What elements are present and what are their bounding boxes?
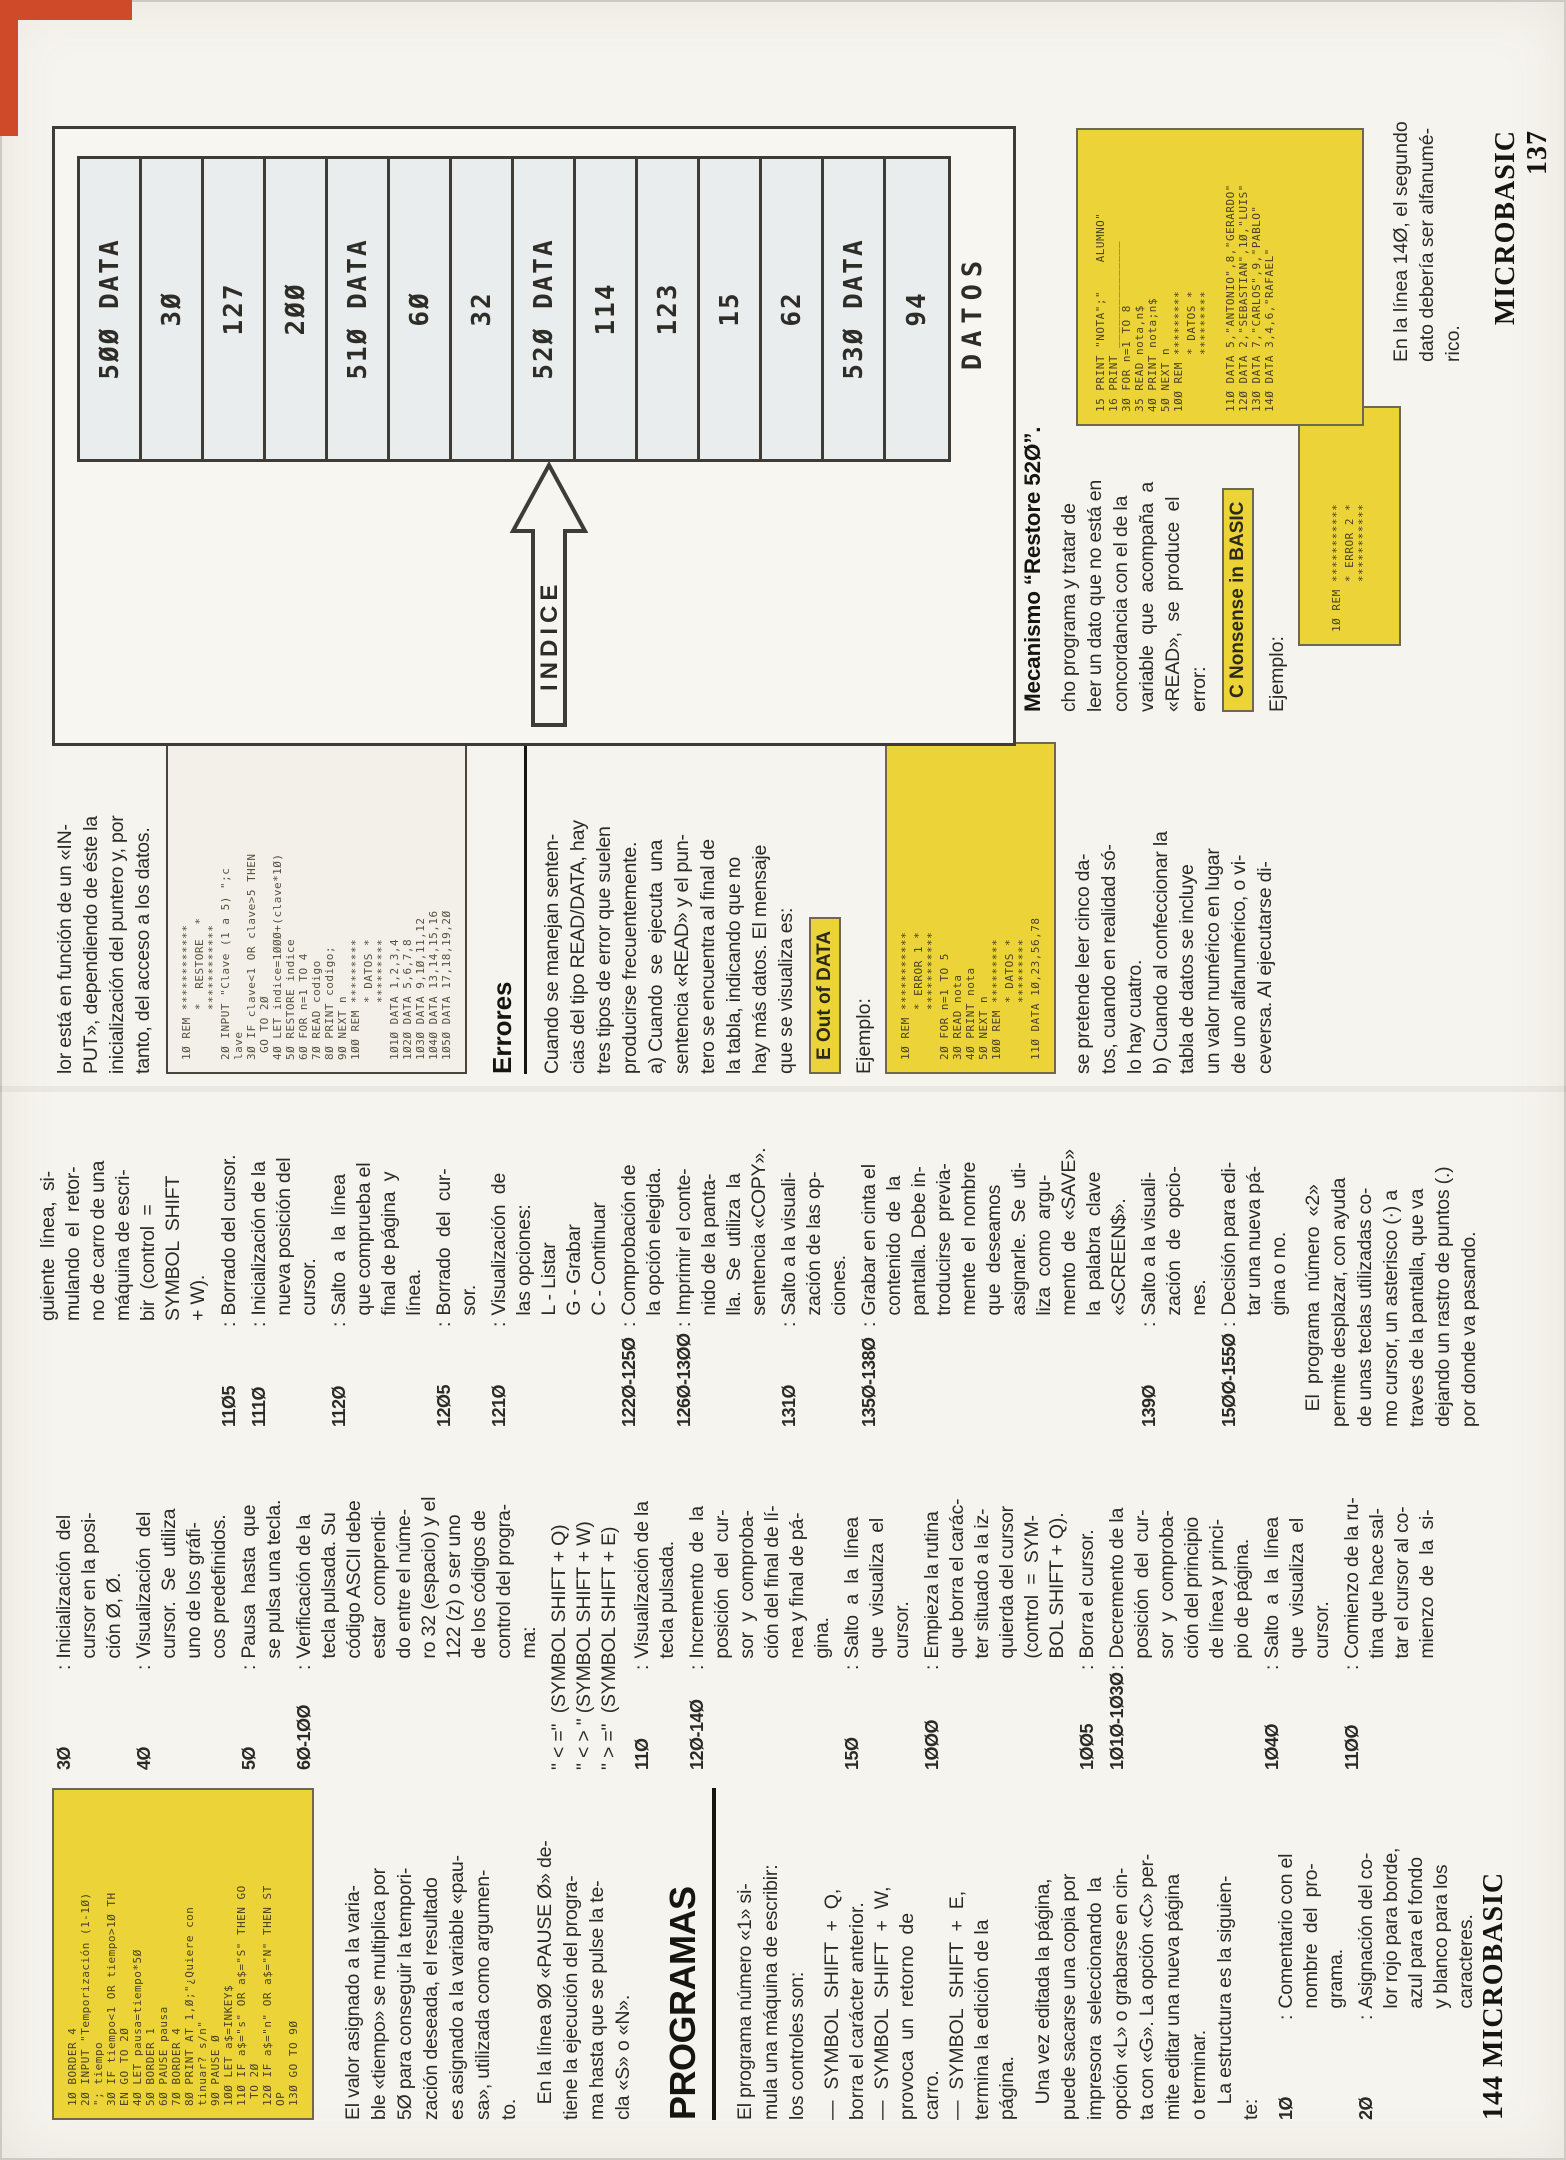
entry-text: Inicialización delcursor en la posi-ción… xyxy=(52,1444,127,1659)
line-number-entry: 111Ø:Inicialización de lanueva posición … xyxy=(247,1105,322,1427)
text-line: 1Ø REM ************ xyxy=(180,756,193,1060)
line-entries-10-20: 1Ø:Comentario con elnombre del pro-grama… xyxy=(1274,1788,1479,2120)
text-line: tina que hace sal- xyxy=(1365,1444,1390,1659)
entry-text: Borrado del cur-sor. xyxy=(432,1105,482,1316)
table-row: 15 xyxy=(700,159,762,459)
entry-number: 135Ø-138Ø xyxy=(857,1331,1132,1427)
text-line: + W). xyxy=(186,1105,211,1321)
text-line: las opciones: xyxy=(512,1105,537,1316)
entry-colon: : xyxy=(247,1316,322,1331)
entry-number: 139Ø xyxy=(1137,1331,1212,1427)
text-line: 8Ø PRINT AT 1,Ø;"¿Quiere con xyxy=(183,1802,196,2106)
text-line: cursor en la posi- xyxy=(77,1444,102,1659)
data-table: 5ØØ DATA3Ø1272ØØ51Ø DATA6Ø3252Ø DATA1141… xyxy=(77,156,951,462)
text-line: 6Ø FOR n=1 TO 4 xyxy=(297,756,310,1060)
text-line: — SYMBOL SHIFT + E, xyxy=(945,1788,970,2120)
entry-number: 112Ø xyxy=(327,1331,427,1427)
entry-text: Borra el cursor. xyxy=(1075,1444,1100,1659)
text-line: «SCREEN$». xyxy=(1107,1105,1132,1316)
section-heading-programas: PROGRAMAS xyxy=(662,1788,716,2120)
entry-number: 1Ø4Ø xyxy=(1260,1674,1335,1770)
column-b: 3Ø:Inicialización delcursor en la posi-c… xyxy=(52,1444,1445,1770)
text-line: uno de los gráfi- xyxy=(182,1444,207,1659)
entry-number: 3Ø xyxy=(52,1674,127,1770)
text-line: puede sacarse una copia por xyxy=(1056,1788,1082,2120)
paragraph-una-vez-editada: Una vez editada la página,puede sacarse … xyxy=(1030,1788,1264,2120)
text-line: contenido de la xyxy=(882,1105,907,1316)
entry-colon: : xyxy=(217,1316,242,1331)
text-line: nea y final de pá- xyxy=(785,1444,810,1659)
text-line: ********* xyxy=(1198,142,1211,412)
text-line: cursor. Se utiliza xyxy=(157,1444,182,1659)
entry-colon: : xyxy=(777,1316,852,1331)
text-line: lor rojo para borde, xyxy=(1379,1788,1404,2009)
text-line: gina o no. xyxy=(1267,1105,1292,1316)
entry-text: Comentario con elnombre del pro-grama. xyxy=(1274,1788,1349,2009)
entry-number: 126Ø-13ØØ xyxy=(672,1331,772,1427)
text-line: 4Ø LET indice=1ØØØ+(clave*1Ø) xyxy=(271,756,284,1060)
text-line: mula una máquina de escribir: xyxy=(758,1788,784,2120)
text-line: troducirse previa- xyxy=(932,1105,957,1316)
text-line: pio de página. xyxy=(1230,1444,1255,1659)
text-line: posición del cur- xyxy=(1130,1444,1155,1659)
text-line: cla «S» o «N». xyxy=(610,1788,636,2120)
text-line: Cuando se manejan senten- xyxy=(539,742,565,1074)
line-number-entry: 4Ø:Visualización delcursor. Se utilizaun… xyxy=(132,1444,232,1770)
line-number-entry: 12Ø-14Ø:Incremento de laposición del cur… xyxy=(685,1444,835,1770)
text-line: 1ØØ REM ********* xyxy=(349,756,362,1060)
entry-number: 5Ø xyxy=(237,1674,287,1770)
text-line: ción del final de lí- xyxy=(760,1444,785,1659)
text-line: El programa número «1» si- xyxy=(732,1788,758,2120)
text-line: 3Ø IF tiempo<1 OR tiempo>1Ø TH xyxy=(105,1802,118,2106)
text-line: sa», utilizada como argumen- xyxy=(470,1788,496,2120)
entry-colon: : xyxy=(1354,2009,1479,2024)
entry-colon: : xyxy=(1137,1316,1212,1331)
text-line: tecla pulsada. xyxy=(655,1444,680,1659)
text-line: GO TO 2Ø xyxy=(258,756,271,1060)
text-line: Salto a la visuali- xyxy=(1137,1105,1162,1316)
text-line: Pausa hasta que xyxy=(237,1444,262,1659)
entry-number: 4Ø xyxy=(132,1674,232,1770)
text-line: producirse frecuentemente. xyxy=(617,742,643,1074)
text-line: 11Ø IF a$="s" OR a$="S" THEN GO xyxy=(235,1802,248,2106)
text-line: 6Ø PAUSE pausa xyxy=(157,1802,170,2106)
text-line: " > =" (SYMBOL SHIFT + E) xyxy=(597,1444,622,1770)
entry-text: Imprimir el conte-nido de la panta-lla. … xyxy=(672,1105,772,1316)
entry-colon: : xyxy=(617,1316,667,1331)
text-line: * DATOS * xyxy=(1003,756,1016,1060)
line-number-entry: 15Ø:Salto a la líneaque visualiza elcurs… xyxy=(840,1444,915,1770)
text-line: inicialización del puntero y, por xyxy=(104,742,130,1074)
entry-number: 2Ø xyxy=(1354,2024,1479,2120)
entry-number: 1Ø1Ø-1Ø3Ø xyxy=(1105,1674,1255,1770)
code-box-error1: 1Ø REM *********** * ERROR 1 * *********… xyxy=(885,742,1056,1074)
text-line: Borrado del cur- xyxy=(432,1105,457,1316)
table-row: 127 xyxy=(204,159,266,459)
paragraph-cinco-datos: se pretende leer cinco da-tos, cuando en… xyxy=(1070,742,1278,1074)
entry-number: 1ØØ5 xyxy=(1075,1674,1100,1770)
text-line: Visualización de la xyxy=(630,1444,655,1659)
text-line: rico. xyxy=(1440,114,1466,362)
text-line: Grabar en cinta el xyxy=(857,1105,882,1316)
text-line: zación de las op- xyxy=(802,1105,827,1316)
section-heading-errores: Errores xyxy=(487,742,527,1074)
entry-number: 12Ø5 xyxy=(432,1331,482,1427)
text-line: ro 32 (espacio) y el xyxy=(417,1444,442,1659)
table-row: 32 xyxy=(452,159,514,459)
text-line: do entre el núme- xyxy=(392,1444,417,1659)
text-line: asignarle. Se uti- xyxy=(1007,1105,1032,1316)
text-line: 14Ø DATA 3,4,6,"RAFAEL" xyxy=(1263,142,1276,412)
text-line: El programa número «2» xyxy=(1300,1105,1326,1427)
text-line: mente el nombre xyxy=(957,1105,982,1316)
line-number-entry: 12Ø5:Borrado del cur-sor. xyxy=(432,1105,482,1427)
entry-text: Incremento de laposición del cur-sor y c… xyxy=(685,1444,835,1659)
text-line: sentencia «READ» y el pun- xyxy=(669,742,695,1074)
text-line: 2Ø FOR n=1 TO 5 xyxy=(938,756,951,1060)
text-line: que borra el carác- xyxy=(945,1444,970,1659)
text-line: * DATOS * xyxy=(362,756,375,1060)
entry-colon: : xyxy=(840,1659,915,1674)
text-line: azul para el fondo xyxy=(1404,1788,1429,2009)
text-line: — SYMBOL SHIFT + W, xyxy=(870,1788,895,2120)
table-row: 94 xyxy=(886,159,948,459)
text-line: to. xyxy=(496,1788,522,2120)
text-line: a) Cuando se ejecuta una xyxy=(643,742,669,1074)
text-line: por donde va pasando. xyxy=(1456,1105,1482,1427)
text-line: permite desplazar, con ayuda xyxy=(1326,1105,1352,1427)
text-line: 1Ø2Ø DATA 5,6,7,8 xyxy=(401,756,414,1060)
text-line: 1Ø4Ø DATA 13,14,15,16 xyxy=(427,756,440,1060)
text-line: cursor. xyxy=(297,1105,322,1316)
text-line: la palabra clave xyxy=(1082,1105,1107,1316)
text-line: 3Ø READ nota xyxy=(951,756,964,1060)
entry-text: Grabar en cinta elcontenido de lapantall… xyxy=(857,1105,1132,1316)
entry-colon: : xyxy=(52,1659,127,1674)
line-number-entry: 1ØØØ:Empieza la rutinaque borra el carác… xyxy=(920,1444,1070,1770)
text-line: control del progra- xyxy=(492,1444,517,1659)
paragraph-linea-90: En la línea 9Ø «PAUSE Ø» de-tiene la eje… xyxy=(532,1788,636,2120)
column-e: lor está en función de un «IN-PUT», depe… xyxy=(52,742,1288,1074)
text-line: ma: xyxy=(517,1444,542,1659)
symbol-shift-bullets: — SYMBOL SHIFT + Q,borra el carácter ant… xyxy=(820,1788,1020,2120)
text-line: borra el carácter anterior. xyxy=(845,1788,870,2120)
line-number-entry: 1Ø4Ø:Salto a la líneaque visualiza elcur… xyxy=(1260,1444,1335,1770)
text-line: se pretende leer cinco da- xyxy=(1070,742,1096,1074)
text-line: nueva posición del xyxy=(272,1105,297,1316)
text-line: 12Ø IF a$="n" OR a$="N" THEN ST xyxy=(261,1802,274,2106)
text-line: Borrado del cursor. xyxy=(217,1105,242,1316)
text-line: TO 2Ø xyxy=(248,1802,261,2106)
text-line: de los códigos de xyxy=(467,1444,492,1659)
text-line: tero se encuentra al final de xyxy=(695,742,721,1074)
text-line: 4Ø LET pausa=tiempo*5Ø xyxy=(131,1802,144,2106)
text-line: 1Ø REM *********** xyxy=(1330,420,1343,632)
entry-colon: : xyxy=(920,1659,1070,1674)
text-line: 1ØØ LET a$=INKEY$ xyxy=(222,1802,235,2106)
text-line: tar una nueva pá- xyxy=(1242,1105,1267,1316)
text-line: nes. xyxy=(1187,1105,1212,1316)
text-line: Salto a la línea xyxy=(840,1444,865,1659)
entry-text: Salto a la líneaque visualiza elcursor. xyxy=(840,1444,915,1659)
entry-text: Visualización delcursor. Se utilizauno d… xyxy=(132,1444,232,1659)
continuation-1100: guiente línea, si-mulando el retor-no de… xyxy=(36,1105,211,1427)
text-line: mo cursor, un asterisco (·) a xyxy=(1378,1105,1404,1427)
text-line: mento de «SAVE» xyxy=(1057,1105,1082,1316)
text-line: * DATOS * xyxy=(1185,142,1198,412)
line-entries-1105-1550: 11Ø5:Borrado del cursor.111Ø:Inicializac… xyxy=(217,1105,1292,1427)
entry-text: Asignación del co-lor rojo para borde,az… xyxy=(1354,1788,1479,2009)
label-nonsense-basic: C Nonsense in BASIC xyxy=(1222,488,1254,712)
text-line: y blanco para los xyxy=(1429,1788,1454,2009)
text-line: ma hasta que se pulse la te- xyxy=(584,1788,610,2120)
text-line: de línea y princi- xyxy=(1205,1444,1230,1659)
text-line: 5Ø para conseguir la tempori- xyxy=(392,1788,418,2120)
text-line: cursor. xyxy=(1310,1444,1335,1659)
indice-arrow-label: INDICE xyxy=(536,580,564,691)
entry-text: Decisión para edi-tar una nueva pá-gina … xyxy=(1217,1105,1292,1316)
entry-number: 11Ø5 xyxy=(217,1331,242,1427)
text-line: estar comprendi- xyxy=(367,1444,392,1659)
entry-colon: : xyxy=(1075,1659,1100,1674)
text-line: 13Ø GO TO 9Ø xyxy=(287,1802,300,2106)
table-row: 53Ø DATA xyxy=(824,159,886,459)
text-line: b) Cuando al confeccionar la xyxy=(1148,742,1174,1074)
text-line: posición del cur- xyxy=(710,1444,735,1659)
text-line: Salto a la visuali- xyxy=(777,1105,802,1316)
text-line xyxy=(1211,142,1224,412)
text-line: 16 PRINT _______________ xyxy=(1107,142,1120,412)
text-line: te: xyxy=(1238,1788,1264,2120)
entry-colon: : xyxy=(1274,2009,1349,2024)
entry-text: Comprobación dela opción elegida. xyxy=(617,1105,667,1316)
line-number-entry: 121Ø:Visualización delas opciones:L - Li… xyxy=(487,1105,612,1427)
text-line: "; tiempo xyxy=(92,1802,105,2106)
text-line: Comienzo de la ru- xyxy=(1340,1444,1365,1659)
text-line: 11Ø DATA 1Ø,23,56,78 xyxy=(1029,756,1042,1060)
table-row: 2ØØ xyxy=(266,159,328,459)
text-line: 8Ø PRINT codigo; xyxy=(323,756,336,1060)
entry-number: 11Ø xyxy=(630,1674,680,1770)
text-line: nombre del pro- xyxy=(1299,1788,1324,2009)
text-line: " < > " (SYMBOL SHIFT + W) xyxy=(572,1444,597,1770)
entry-colon: : xyxy=(1105,1659,1255,1674)
text-line: un valor numérico en lugar xyxy=(1200,742,1226,1074)
table-row: 51Ø DATA xyxy=(328,159,390,459)
text-line: 35 READ nota,n$ xyxy=(1133,142,1146,412)
text-line: que visualiza el xyxy=(1285,1444,1310,1659)
text-line: que visualiza el xyxy=(865,1444,890,1659)
line-number-entry: 6Ø-1ØØ:Verificación de latecla pulsada. … xyxy=(292,1444,542,1770)
text-line: impresora seleccionando la xyxy=(1082,1788,1108,2120)
line-number-entry: 3Ø:Inicialización delcursor en la posi-c… xyxy=(52,1444,127,1770)
text-line: liza como argu- xyxy=(1032,1105,1057,1316)
red-corner-mark xyxy=(0,0,132,20)
text-line: C - Continuar xyxy=(587,1105,612,1316)
text-line: zación de opcio- xyxy=(1162,1105,1187,1316)
red-corner-mark xyxy=(0,0,18,136)
text-line: 9Ø NEXT n xyxy=(336,756,349,1060)
table-row: 123 xyxy=(638,159,700,459)
page-gutter-line xyxy=(0,1086,1566,1092)
text-line: los controles son: xyxy=(784,1788,810,2120)
table-row: 62 xyxy=(762,159,824,459)
text-line: 5Ø NEXT n xyxy=(977,756,990,1060)
line-number-entry: 11ØØ:Comienzo de la ru-tina que hace sal… xyxy=(1340,1444,1440,1770)
entry-text: Empieza la rutinaque borra el carác-ter … xyxy=(920,1444,1070,1659)
code-box-timer: 1Ø BORDER 42Ø INPUT "Temporización (1-1Ø… xyxy=(52,1788,314,2120)
text-line: 4Ø PRINT nota;n$ xyxy=(1146,142,1159,412)
entry-colon: : xyxy=(1340,1659,1440,1674)
text-line: * ERROR 2 * xyxy=(1343,420,1356,632)
text-line: 2Ø INPUT "Clave (1 a 5) ";c xyxy=(219,756,232,1060)
text-line: tres tipos de error que suelen xyxy=(591,742,617,1074)
entry-text: Salto a la visuali-zación de opcio-nes. xyxy=(1137,1105,1212,1316)
text-line: mienzo de la si- xyxy=(1415,1444,1440,1659)
text-line: 3Ø FOR n=1 TO 8 xyxy=(1120,142,1133,412)
text-line: 3Ø IF clave<1 OR clave>5 THEN xyxy=(245,756,258,1060)
text-line: sentencia «COPY». xyxy=(747,1105,772,1316)
text-line: 11Ø DATA 5,"ANTONIO",8,"GERARDO" xyxy=(1224,142,1237,412)
text-line: 7Ø BORDER 4 xyxy=(170,1802,183,2106)
entry-colon: : xyxy=(292,1659,542,1674)
text-line: provoca un retorno de xyxy=(895,1788,920,2120)
text-line: tinuar? s/n" xyxy=(196,1802,209,2106)
footer-page-144: 144 MICROBASIC xyxy=(1478,1872,1510,2120)
text-line: Visualización de xyxy=(487,1105,512,1316)
text-line: G - Grabar xyxy=(562,1105,587,1316)
footer-page-137: MICROBASIC 137 xyxy=(1490,130,1554,370)
line-entries-30-100: 3Ø:Inicialización delcursor en la posi-c… xyxy=(52,1444,542,1770)
paragraph-programa-1: El programa número «1» si-mula una máqui… xyxy=(732,1788,810,2120)
text-line: ************ xyxy=(206,756,219,1060)
text-line: máquina de escri- xyxy=(111,1105,136,1321)
line-number-entry: 1Ø:Comentario con elnombre del pro-grama… xyxy=(1274,1788,1349,2120)
table-row: 52Ø DATA xyxy=(514,159,576,459)
text-line: bir (control = xyxy=(136,1105,161,1321)
code-box-error2: 1Ø REM *********** * ERROR 2 * *********… xyxy=(1298,406,1401,646)
text-line: Inicialización del xyxy=(52,1444,77,1659)
text-line: SYMBOL SHIFT xyxy=(161,1105,186,1321)
text-line: 9Ø PAUSE Ø xyxy=(209,1802,222,2106)
text-line: 1Ø BORDER 4 xyxy=(66,1802,79,2106)
text-line: Comprobación de xyxy=(617,1105,642,1316)
text-line: final de página y xyxy=(377,1105,402,1316)
line-number-entry: 2Ø:Asignación del co-lor rojo para borde… xyxy=(1354,1788,1479,2120)
text-line: sor y comproba- xyxy=(735,1444,760,1659)
text-line: 1ØØ REM ********* xyxy=(990,756,1003,1060)
text-line: ciones. xyxy=(827,1105,852,1316)
text-line: dato debería ser alfanumé- xyxy=(1414,114,1440,362)
text-line: hay más datos. El mensaje xyxy=(747,742,773,1074)
scanned-page-viewport: 1Ø BORDER 42Ø INPUT "Temporización (1-1Ø… xyxy=(0,0,1566,2160)
text-line: 1Ø1Ø DATA 1,2,3,4 xyxy=(388,756,401,1060)
text-line: mulando el retor- xyxy=(61,1105,86,1321)
code-box-restore: 1Ø REM ************ * RESTORE * ********… xyxy=(166,742,467,1074)
entry-text: Inicialización de lanueva posición delcu… xyxy=(247,1105,322,1316)
table-row: 114 xyxy=(576,159,638,459)
text-line: *********** xyxy=(1356,420,1369,632)
text-line: que deseamos xyxy=(982,1105,1007,1316)
entry-text: Salto a la líneaque comprueba elfinal de… xyxy=(327,1105,427,1316)
text-line: * ERROR 1 * xyxy=(912,756,925,1060)
text-line: Inicialización de la xyxy=(247,1105,272,1316)
text-line: gina. xyxy=(810,1444,835,1659)
text-line: El valor asignado a la varia- xyxy=(340,1788,366,2120)
text-line: Imprimir el conte- xyxy=(672,1105,697,1316)
text-line: En la línea 9Ø «PAUSE Ø» de- xyxy=(532,1788,558,2120)
entry-colon: : xyxy=(327,1316,427,1331)
line-number-entry: 122Ø-125Ø:Comprobación dela opción elegi… xyxy=(617,1105,667,1427)
text-line: grama. xyxy=(1324,1788,1349,2009)
line-number-entry: 5Ø:Pausa hasta quese pulsa una tecla. xyxy=(237,1444,287,1770)
entry-colon: : xyxy=(237,1659,287,1674)
column-a: 1Ø BORDER 42Ø INPUT "Temporización (1-1Ø… xyxy=(52,1788,1484,2120)
text-line: Visualización del xyxy=(132,1444,157,1659)
text-line: código ASCII debe xyxy=(342,1444,367,1659)
text-line: ción del principio xyxy=(1180,1444,1205,1659)
text-line: nido de la panta- xyxy=(697,1105,722,1316)
text-line: tecla pulsada. Su xyxy=(317,1444,342,1659)
text-line: lla. Se utiliza la xyxy=(722,1105,747,1316)
text-line: sor y comproba- xyxy=(1155,1444,1180,1659)
entry-text: Visualización delas opciones:L - ListarG… xyxy=(487,1105,612,1316)
text-line: ter situado a la iz- xyxy=(970,1444,995,1659)
entry-number: 15Ø xyxy=(840,1674,915,1770)
text-line: 2Ø INPUT "Temporización (1-1Ø) xyxy=(79,1802,92,2106)
text-line: 12Ø DATA 2,"SEBASTIAN",1Ø,"LUIS" xyxy=(1237,142,1250,412)
text-line: Comentario con el xyxy=(1274,1788,1299,2009)
text-line: La estructura es la siguien- xyxy=(1212,1788,1238,2120)
line-number-entry: 11Ø:Visualización de latecla pulsada. xyxy=(630,1444,680,1770)
text-line: cias del tipo READ/DATA, hay xyxy=(565,742,591,1074)
text-line: ta con «G». La opción «C» per- xyxy=(1134,1788,1160,2120)
entry-colon: : xyxy=(672,1316,772,1331)
entry-number: 131Ø xyxy=(777,1331,852,1427)
paragraph-programa-2: El programa número «2»permite desplazar,… xyxy=(1300,1105,1482,1427)
text-line: — SYMBOL SHIFT + Q, xyxy=(820,1788,845,2120)
line-number-entry: 15ØØ-155Ø:Decisión para edi-tar una nuev… xyxy=(1217,1105,1292,1427)
text-line: 122 (z) o ser uno xyxy=(442,1444,467,1659)
text-line: de uno alfanumérico, o vi- xyxy=(1226,742,1252,1074)
line-number-entry: 131Ø:Salto a la visuali-zación de las op… xyxy=(777,1105,852,1427)
line-number-entry: 112Ø:Salto a la líneaque comprueba elfin… xyxy=(327,1105,427,1427)
line-number-entry: 11Ø5:Borrado del cursor. xyxy=(217,1105,242,1427)
figure-box: 5ØØ DATA3Ø1272ØØ51Ø DATA6Ø3252Ø DATA1141… xyxy=(52,126,1016,746)
ejemplo-label: Ejemplo: xyxy=(851,742,877,1074)
text-line: EN GO TO 2Ø xyxy=(118,1802,131,2106)
text-line: 1Ø5Ø DATA 17,18,19,2Ø xyxy=(440,756,453,1060)
entry-colon: : xyxy=(630,1659,680,1674)
text-line: 1Ø REM *********** xyxy=(899,756,912,1060)
entry-colon: : xyxy=(685,1659,835,1674)
caption-linea-140: En la línea 14Ø, el segundodato debería … xyxy=(1388,114,1466,362)
text-line: o terminar. xyxy=(1186,1788,1212,2120)
text-line: Incremento de la xyxy=(685,1444,710,1659)
text-line: 15 PRINT "NOTA";" ALUMNO" xyxy=(1094,142,1107,412)
text-line: línea. xyxy=(402,1105,427,1316)
entry-number: 122Ø-125Ø xyxy=(617,1331,667,1427)
text-line: " < =" (SYMBOL SHIFT + Q) xyxy=(547,1444,572,1770)
entry-colon: : xyxy=(1217,1316,1292,1331)
entry-number: 12Ø-14Ø xyxy=(685,1674,835,1770)
table-row: 5ØØ DATA xyxy=(80,159,142,459)
text-line: ********* xyxy=(375,756,388,1060)
text-line: OP xyxy=(274,1802,287,2106)
indice-arrow: INDICE xyxy=(507,459,591,729)
column-g: 15 PRINT "NOTA";" ALUMNO"16 PRINT ______… xyxy=(1076,128,1364,426)
